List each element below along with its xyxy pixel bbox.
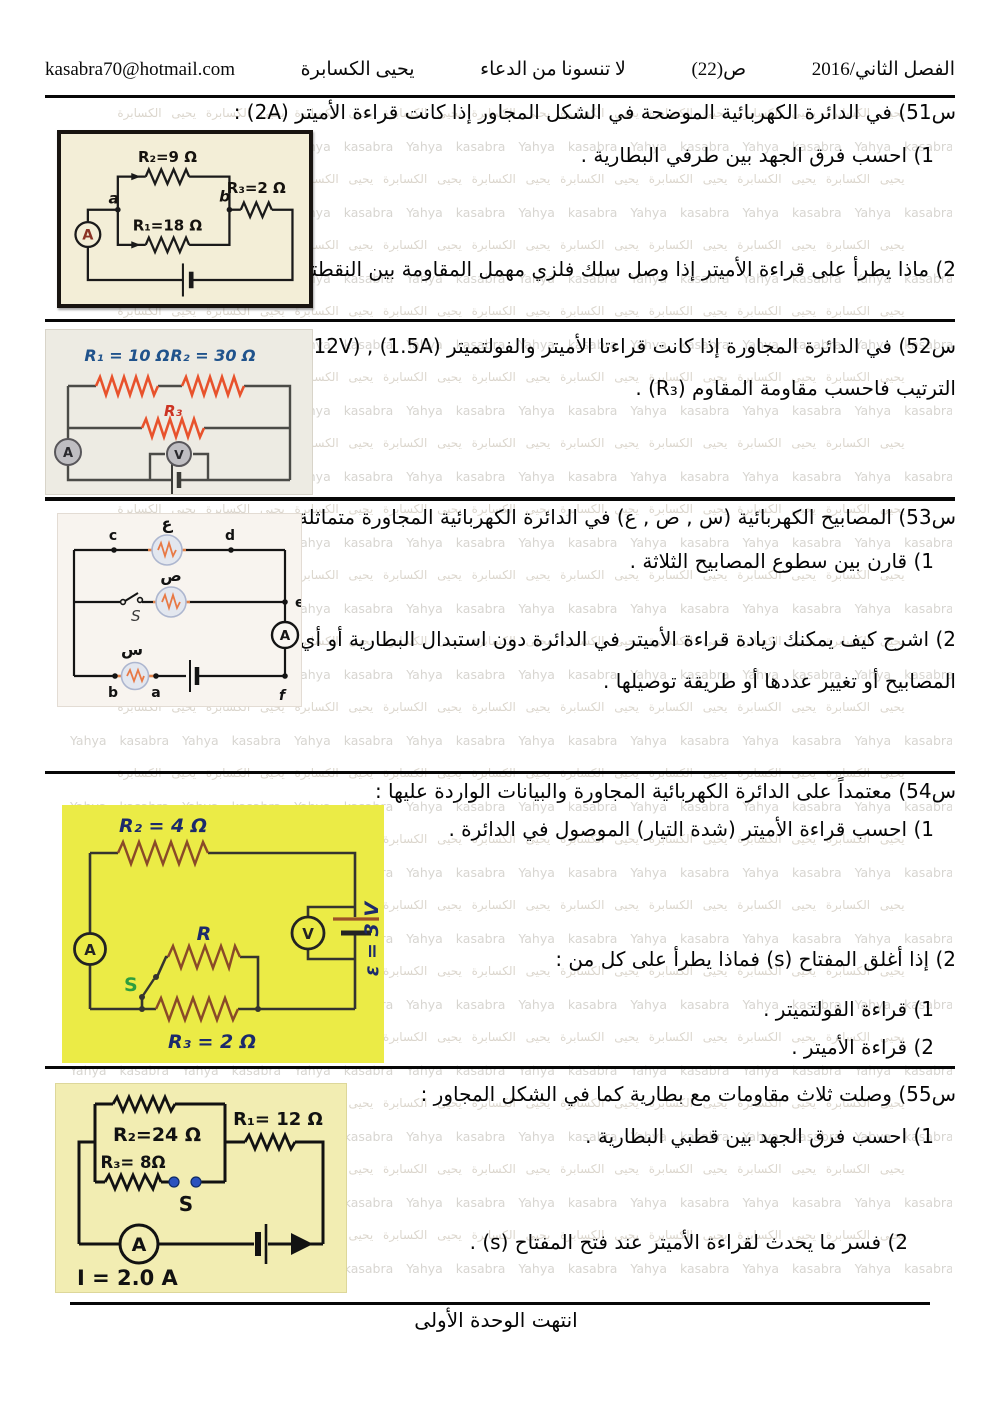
r3-label: R₃= 8Ω: [100, 1153, 165, 1172]
node-b-dot: [227, 207, 233, 213]
q54-ammeter-symbol: A: [75, 934, 106, 965]
ammeter-letter: A: [132, 1234, 147, 1256]
q52-title-line1: س52) في الدائرة المجاورة إذا كانت قراءتا…: [264, 334, 956, 358]
q51-circuit-diagram: A R₂=9 Ω R₃=2 Ω R₁=18 Ω a b: [57, 130, 313, 308]
q54-sub1: 1) قراءة الفولتميتر .: [763, 997, 934, 1021]
q53-switch-symbol: [121, 593, 143, 604]
q54-circuit-diagram: A V R₂ = 4 Ω R R₃ = 2 Ω S ε = 3 V: [62, 805, 384, 1063]
q54-title: س54) معتمداً على الدائرة الكهربائية المج…: [375, 779, 956, 803]
resistor-r1: [146, 238, 189, 252]
q51-labels: R₂=9 Ω R₃=2 Ω R₁=18 Ω a b: [109, 148, 287, 234]
q51-ammeter-symbol: A: [75, 222, 100, 247]
resistor-r1: [245, 1135, 295, 1149]
switch-label: S: [131, 607, 141, 625]
header-author: يحيى الكسابرة: [301, 58, 415, 81]
node-f-label: f: [279, 688, 287, 704]
q53-battery-symbol: [190, 660, 197, 692]
q52-title-line2: الترتيب فاحسب مقاومة المقاوم (R₃) .: [635, 376, 956, 400]
lamp-mid-label: ص: [160, 566, 182, 585]
q52-voltmeter-symbol: V: [167, 442, 191, 466]
header-page-number: ص(22): [691, 58, 746, 81]
q55-ammeter-symbol: A: [120, 1225, 158, 1263]
switch-label: S: [124, 974, 138, 996]
q55-circuit-svg: A R₂=24 Ω R₃= 8Ω R₁= 12 Ω S I = 2.0 A: [56, 1084, 346, 1292]
resistor-r2: [118, 842, 208, 864]
watermark-text: Yahya kasabra Yahya kasabra Yahya kasabr…: [70, 733, 952, 748]
q55-part1: 1) احسب فرق الجهد بين قطبي البطارية .: [585, 1124, 934, 1148]
node-e-label: e: [295, 595, 301, 611]
ammeter-letter: A: [84, 941, 96, 959]
q52-ammeter-symbol: A: [55, 439, 81, 465]
r3-label: R₃: [164, 402, 183, 420]
section-divider-2: [45, 497, 955, 501]
q54-sub2: 2) قراءة الأميتر .: [791, 1035, 934, 1059]
q53-ammeter-symbol: A: [272, 622, 298, 648]
q51-part1: 1) احسب فرق الجهد بين طرفي البطارية .: [581, 143, 934, 167]
q51-title: س51) في الدائرة الكهربائية الموضحة في ال…: [234, 100, 956, 124]
lamp-middle: [153, 587, 190, 617]
page-header: الفصل الثاني/2016 ص(22) لا تنسونا من الد…: [45, 58, 955, 81]
voltmeter-letter: V: [302, 925, 314, 943]
q52-circuit-svg: A V R₁ = 10 Ω R₂ = 30 Ω R₃: [46, 330, 312, 494]
r1-label: R₁= 12 Ω: [233, 1109, 323, 1130]
r1-label: R₁ = 10 Ω: [84, 346, 169, 365]
header-divider: [45, 95, 955, 98]
lamp-bottom-label: س: [121, 640, 143, 659]
resistor-r: [168, 946, 240, 968]
header-email: kasabra70@hotmail.com: [45, 59, 235, 81]
r2-label: R₂ = 30 Ω: [170, 346, 255, 365]
section-divider-3: [45, 771, 955, 774]
q55-part2: 2) فسر ما يحدث لقراءة الأميتر عند فتح ال…: [470, 1230, 908, 1254]
r-label: R: [197, 923, 212, 945]
q54-voltmeter-symbol: V: [292, 917, 324, 949]
q52-circuit-diagram: A V R₁ = 10 Ω R₂ = 30 Ω R₃: [45, 329, 313, 495]
resistor-r3: [142, 419, 204, 437]
section-divider-4: [45, 1066, 955, 1069]
resistor-r2: [146, 169, 189, 183]
resistor-r3: [105, 1175, 161, 1189]
r3-label: R₃ = 2 Ω: [168, 1031, 256, 1053]
worksheet-page: يحيى الكسابرة يحيى الكسابرة يحيى الكسابر…: [0, 0, 992, 1403]
node-b-label: b: [108, 685, 118, 701]
lamp-top-label: ع: [162, 514, 174, 533]
q53-title: س53) المصابيح الكهربائية (س , ص , ع) في …: [285, 505, 956, 529]
r1-label: R₁=18 Ω: [133, 216, 203, 234]
r2-label: R₂ = 4 Ω: [119, 815, 207, 837]
r2-label: R₂=9 Ω: [138, 148, 197, 166]
section-divider-1: [45, 319, 955, 322]
footer-divider: [70, 1302, 930, 1305]
ammeter-letter: A: [280, 628, 291, 644]
resistor-r2: [182, 377, 244, 395]
header-term: الفصل الثاني/2016: [812, 58, 955, 81]
q53-part2-line1: 2) اشرح كيف يمكنك زيادة قراءة الأميتر في…: [268, 627, 956, 651]
voltmeter-letter: V: [174, 447, 184, 462]
q55-title: س55) وصلت ثلاث مقاومات مع بطارية كما في …: [421, 1082, 956, 1106]
current-arrow: [291, 1233, 313, 1255]
q51-battery-symbol: [183, 263, 191, 296]
q52-battery-symbol: [172, 464, 179, 494]
q53-part2-line2: المصابيح أو تغيير عددها أو طريقة توصيلها…: [603, 669, 956, 693]
ammeter-letter: A: [82, 228, 94, 244]
current-label: I = 2.0 A: [77, 1266, 179, 1290]
resistor-r3: [156, 998, 238, 1020]
emf-label: ε = 3 V: [361, 901, 383, 977]
q54-part2: 2) إذا أغلق المفتاح (s) فماذا يطرأ على ك…: [555, 947, 956, 971]
lamp-top: [148, 535, 186, 565]
ammeter-letter: A: [63, 446, 73, 461]
q55-switch-symbol: [169, 1177, 201, 1187]
footer-end-note: انتهت الوحدة الأولى: [0, 1308, 992, 1332]
r3-label: R₃=2 Ω: [227, 179, 286, 197]
q54-part1: 1) احسب قراءة الأميتر (شدة التيار) الموص…: [448, 817, 934, 841]
q53-part1: 1) قارن بين سطوع المصابيح الثلاثة .: [630, 549, 934, 573]
q55-circuit-diagram: A R₂=24 Ω R₃= 8Ω R₁= 12 Ω S I = 2.0 A: [55, 1083, 347, 1293]
q53-circuit-svg: A ع ص س c d e S b a f: [58, 514, 301, 706]
q53-circuit-diagram: A ع ص س c d e S b a f: [57, 513, 302, 707]
q55-battery-symbol: [258, 1224, 266, 1264]
resistor-r2: [113, 1097, 175, 1111]
r2-label: R₂=24 Ω: [113, 1124, 201, 1146]
node-d-label: d: [225, 528, 235, 544]
resistor-r3: [241, 202, 272, 216]
switch-label: S: [179, 1192, 193, 1216]
resistor-r1: [96, 377, 158, 395]
node-a-label: a: [151, 685, 160, 701]
node-a-label: a: [109, 190, 119, 208]
node-a-dot: [115, 207, 121, 213]
q54-circuit-svg: A V R₂ = 4 Ω R R₃ = 2 Ω S ε = 3 V: [62, 805, 384, 1063]
header-dua: لا تنسونا من الدعاء: [480, 58, 626, 81]
node-c-label: c: [109, 528, 117, 544]
lamp-bottom: [117, 663, 154, 690]
q51-circuit-svg: A R₂=9 Ω R₃=2 Ω R₁=18 Ω a b: [61, 134, 309, 304]
node-b-label: b: [219, 187, 230, 205]
